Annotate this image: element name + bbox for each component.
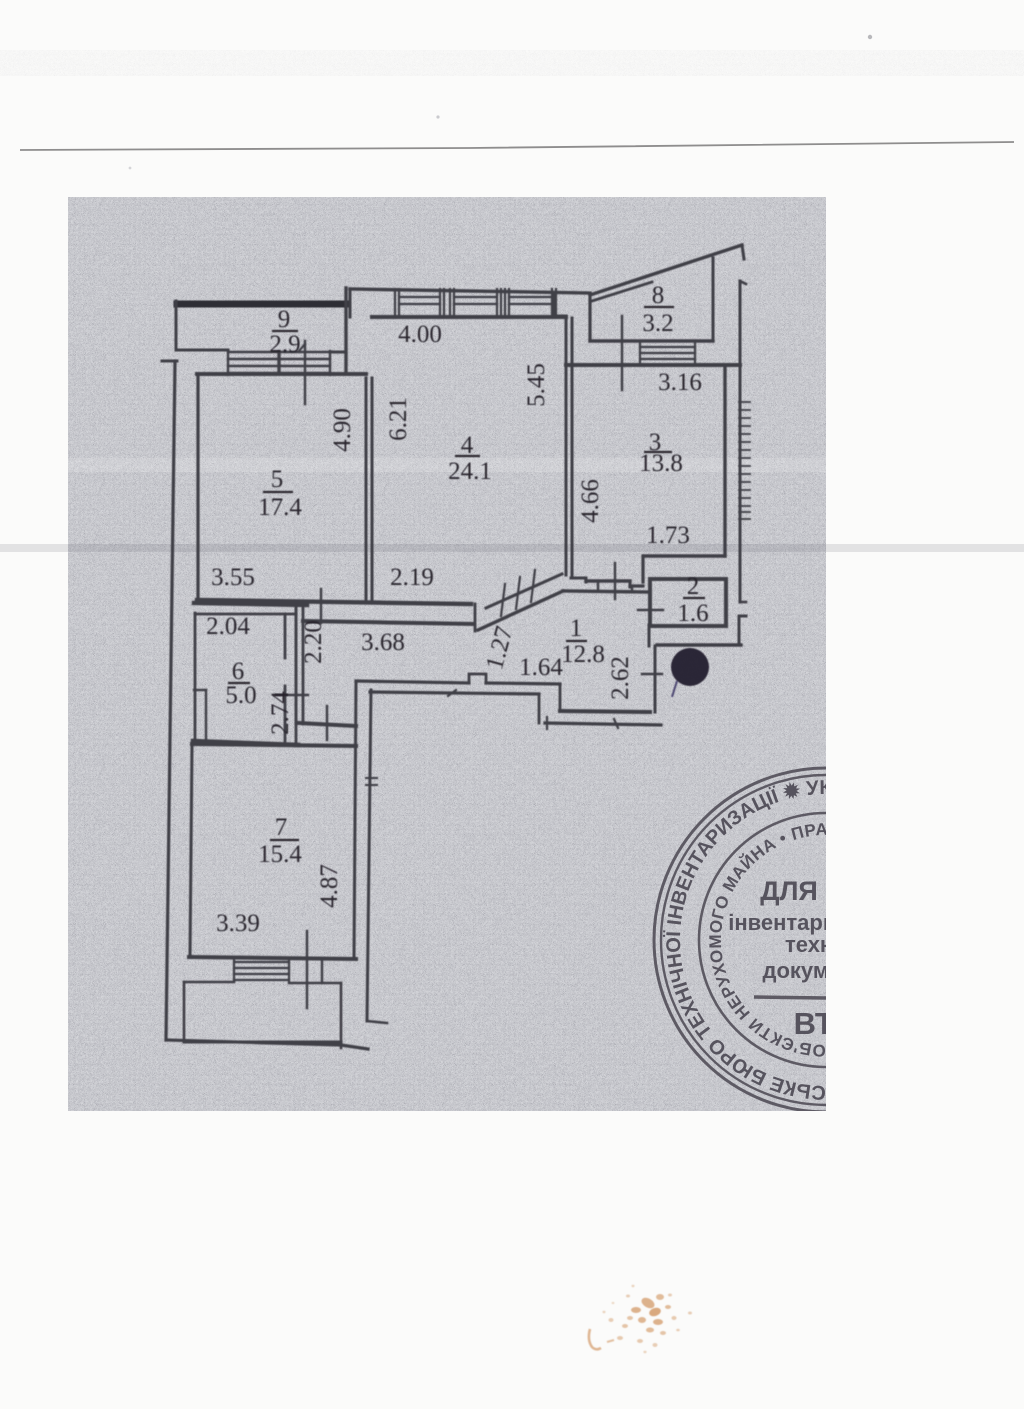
svg-text:1.73: 1.73 — [646, 522, 690, 549]
svg-text:3.55: 3.55 — [211, 564, 255, 591]
svg-text:2.62: 2.62 — [607, 656, 634, 700]
svg-text:13.8: 13.8 — [639, 450, 683, 477]
svg-text:1.64: 1.64 — [519, 654, 563, 681]
svg-text:3.39: 3.39 — [216, 910, 260, 937]
svg-text:2.9: 2.9 — [269, 331, 300, 358]
svg-text:7: 7 — [275, 814, 288, 841]
svg-text:4.87: 4.87 — [316, 864, 343, 908]
svg-text:3.68: 3.68 — [361, 629, 405, 656]
svg-text:4.66: 4.66 — [577, 479, 604, 523]
svg-text:2.19: 2.19 — [390, 564, 434, 591]
svg-text:2: 2 — [687, 573, 700, 600]
svg-text:8: 8 — [652, 282, 665, 309]
svg-text:2.04: 2.04 — [206, 613, 250, 640]
svg-text:1.6: 1.6 — [677, 600, 708, 627]
svg-text:1: 1 — [570, 615, 583, 642]
svg-text:6: 6 — [232, 658, 245, 685]
svg-text:2.74: 2.74 — [267, 691, 294, 735]
svg-text:6.21: 6.21 — [385, 397, 412, 441]
svg-text:15.4: 15.4 — [258, 841, 302, 868]
svg-text:2.20: 2.20 — [300, 620, 327, 664]
svg-text:3.2: 3.2 — [642, 310, 673, 337]
svg-text:5.0: 5.0 — [225, 682, 256, 709]
svg-text:17.4: 17.4 — [258, 494, 302, 521]
svg-text:4.90: 4.90 — [329, 408, 356, 452]
svg-text:5.45: 5.45 — [523, 363, 550, 407]
svg-text:24.1: 24.1 — [448, 458, 492, 485]
svg-text:12.8: 12.8 — [561, 641, 605, 668]
svg-text:4.00: 4.00 — [398, 321, 442, 348]
svg-text:5: 5 — [271, 466, 284, 493]
svg-text:9: 9 — [278, 306, 291, 333]
svg-text:ДЛЯ: ДЛЯ — [760, 876, 818, 906]
svg-text:3.16: 3.16 — [658, 369, 702, 396]
